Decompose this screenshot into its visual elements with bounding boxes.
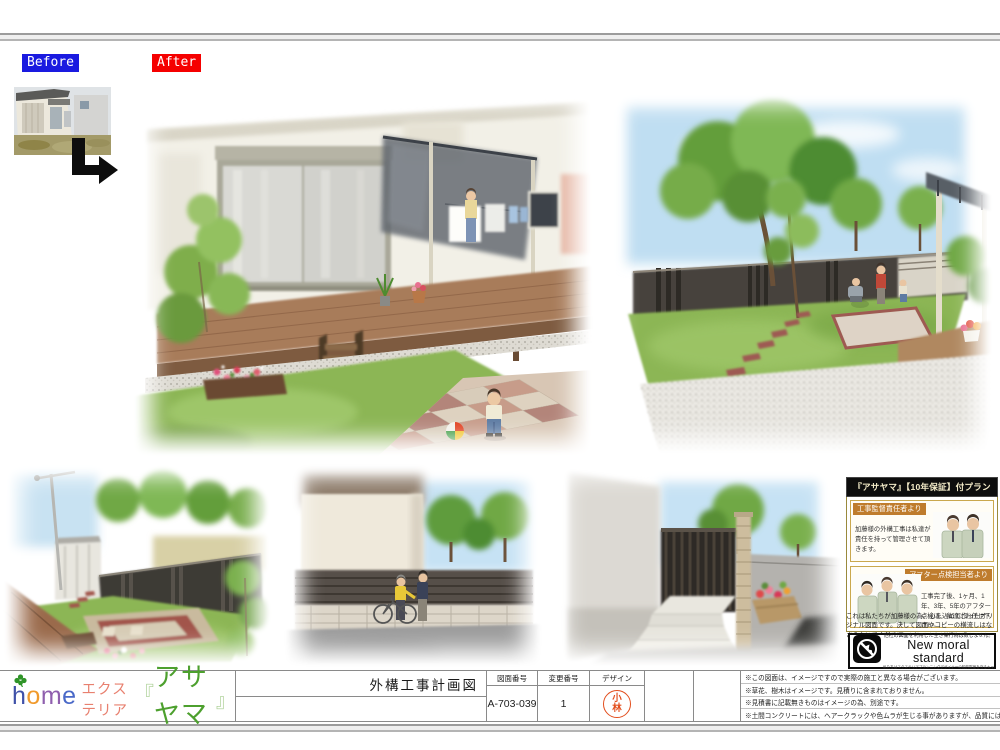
logo-letter-o: o <box>26 682 40 710</box>
after-label: After <box>152 54 201 72</box>
after-rendering-garden-overview <box>598 86 993 456</box>
drawing-number-label: 図面番号 <box>487 671 537 686</box>
logo-brand-text: アサヤマ <box>154 657 216 731</box>
clover-icon <box>14 674 27 692</box>
supervisor-section: 工事監督責任者より 加藤様の外構工事は私達が責任を持って管理させて頂きます。 <box>850 500 994 562</box>
drawing-title-cell: 外構工事計画図 <box>236 671 487 721</box>
supervisor-section-text: 加藤様の外構工事は私達が責任を持って管理させて頂きます。 <box>855 525 931 554</box>
disclaimer-note: ※この図面は、イメージですので実際の施工と異なる場合がございます。 <box>741 671 1000 684</box>
change-number-value: 1 <box>538 686 589 722</box>
top-border-rule <box>0 33 1000 41</box>
drawing-title: 外構工事計画図 <box>236 671 486 697</box>
no-copy-prohibition-icon <box>853 635 881 668</box>
moral-standard-box: 他社の図面を利用した空き巣行為は致しません。 New moral standar… <box>848 633 996 669</box>
empty-cell-2 <box>694 671 741 721</box>
logo-letter-e: e <box>62 682 76 710</box>
after-rendering-garden-aerial <box>3 458 273 668</box>
disclaimer-notes: ※この図面は、イメージですので実際の施工と異なる場合がございます。 ※草花、樹木… <box>741 671 1000 721</box>
logo-letter-m: m <box>41 682 62 710</box>
design-cell: デザイン 小林 <box>590 671 645 721</box>
before-label: Before <box>22 54 79 72</box>
moral-main-text: New moral standard <box>883 639 994 665</box>
disclaimer-note: ※土間コンクリートには、ヘアークラックや色ムラが生じる事がありますが、品質には問… <box>741 709 1000 721</box>
drawing-number-value: A-703-039 <box>487 686 537 722</box>
title-block: home エクステリア 『 アサヤマ 』 外構工事計画図 図面番号 A-703-… <box>0 670 1000 722</box>
bottom-border-rule <box>0 724 1000 732</box>
disclaimer-note: ※見積書に記載無きものはイメージの為、別途です。 <box>741 697 1000 710</box>
logo-open-quote: 『 <box>135 679 154 706</box>
design-label: デザイン <box>590 671 644 686</box>
empty-cell-1 <box>645 671 694 721</box>
logo-close-quote: 』 <box>216 686 235 713</box>
guarantee-panel: 『アサヤマ』【10年保証】付プラン 工事監督責任者より 加藤様の外構工事は私達が… <box>846 477 998 632</box>
after-rendering-entrance-steps <box>548 458 843 668</box>
guarantee-panel-header: 『アサヤマ』【10年保証】付プラン <box>846 477 998 497</box>
designer-stamp: 小林 <box>603 690 631 718</box>
supervisor-photo <box>933 512 991 562</box>
change-number-cell: 変更番号 1 <box>538 671 590 721</box>
after-rendering-main-terrace <box>133 82 593 457</box>
after-rendering-street-fence <box>283 458 543 668</box>
company-logo: home エクステリア 『 アサヤマ 』 <box>0 671 236 721</box>
drawing-number-cell: 図面番号 A-703-039 <box>487 671 538 721</box>
logo-exterior-text: エクステリア <box>82 678 135 720</box>
designer-stamp-name: 小林 <box>612 694 622 715</box>
moral-standard-texts: 他社の図面を利用した空き巣行為は致しません。 New moral standar… <box>883 632 994 670</box>
disclaimer-note: ※草花、樹木はイメージです。見積りに含まれておりません。 <box>741 684 1000 697</box>
change-number-label: 変更番号 <box>538 671 589 686</box>
supervisor-section-label: 工事監督責任者より <box>853 503 926 515</box>
before-to-after-arrow-icon <box>58 138 120 190</box>
